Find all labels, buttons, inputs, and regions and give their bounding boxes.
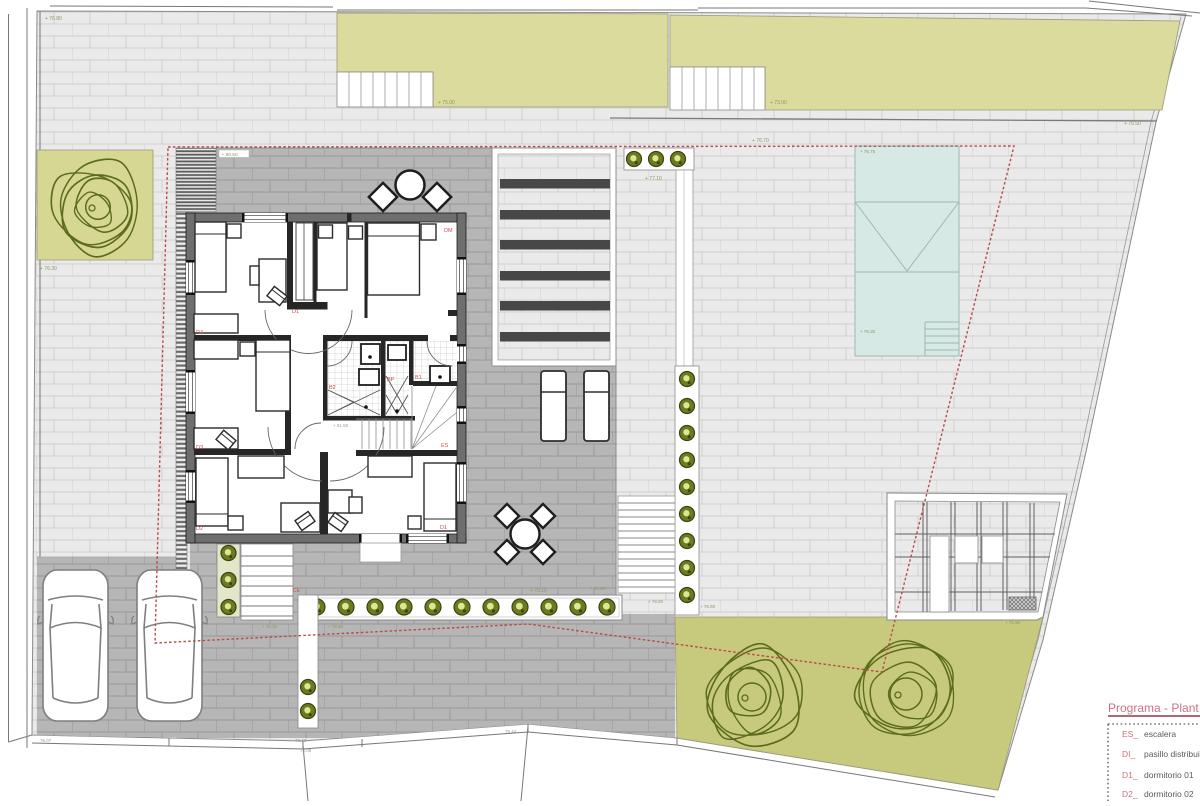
svg-text:DM: DM xyxy=(444,228,453,234)
svg-text:+ 76.30: + 76.30 xyxy=(40,266,57,272)
svg-text:DI_: DI_ xyxy=(1122,749,1136,759)
svg-text:D1: D1 xyxy=(292,309,299,315)
svg-text:+ 77.10: + 77.10 xyxy=(645,176,662,182)
svg-text:D4: D4 xyxy=(196,330,203,336)
svg-text:+ 78.80: + 78.80 xyxy=(648,599,664,604)
svg-text:pasillo distribuidor: pasillo distribuidor xyxy=(1144,749,1200,759)
svg-text:ES: ES xyxy=(441,443,449,449)
svg-text:B2: B2 xyxy=(329,385,336,391)
svg-text:dormitorio 02: dormitorio 02 xyxy=(1144,789,1194,799)
svg-text:76.07: 76.07 xyxy=(40,738,52,743)
svg-text:76.44: 76.44 xyxy=(505,729,517,734)
svg-text:ES_: ES_ xyxy=(1122,729,1138,739)
svg-text:B1: B1 xyxy=(415,375,422,381)
svg-text:+ 76.70: + 76.70 xyxy=(752,138,769,144)
svg-text:escalera: escalera xyxy=(1144,729,1176,739)
svg-text:D2: D2 xyxy=(196,526,203,532)
svg-text:+ 78.10: + 78.10 xyxy=(530,588,547,594)
svg-text:dormitorio 01: dormitorio 01 xyxy=(1144,770,1194,780)
svg-text:CE: CE xyxy=(293,588,301,594)
svg-text:D1: D1 xyxy=(440,525,447,531)
svg-text:+ 80.50: + 80.50 xyxy=(590,586,606,591)
svg-text:+ 81.50: + 81.50 xyxy=(333,423,349,428)
svg-text:78.33: 78.33 xyxy=(295,738,307,743)
svg-text:+ 76.50: + 76.50 xyxy=(700,604,716,609)
svg-text:BP: BP xyxy=(387,377,395,383)
svg-text:+ 78.50: + 78.50 xyxy=(328,624,344,629)
svg-text:Programa - Plant: Programa - Plant xyxy=(1108,701,1199,715)
svg-text:D2_: D2_ xyxy=(1122,789,1138,799)
svg-text:+ 76.90: + 76.90 xyxy=(1005,620,1021,625)
svg-text:+ 76.50: + 76.50 xyxy=(1124,121,1141,127)
svg-text:D3: D3 xyxy=(196,445,203,451)
svg-text:78.08: 78.08 xyxy=(300,748,312,753)
svg-text:+ 73.00: + 73.00 xyxy=(770,100,787,106)
svg-text:+ 78.30: + 78.30 xyxy=(262,624,278,629)
svg-text:+ 76.30: + 76.30 xyxy=(860,329,876,334)
svg-text:D1_: D1_ xyxy=(1122,770,1138,780)
svg-text:+ 75.00: + 75.00 xyxy=(438,100,455,106)
svg-text:+ 76.80: + 76.80 xyxy=(45,16,62,22)
svg-text:+ 76.75: + 76.75 xyxy=(860,149,876,154)
svg-text:+ 80.50: + 80.50 xyxy=(222,152,238,158)
